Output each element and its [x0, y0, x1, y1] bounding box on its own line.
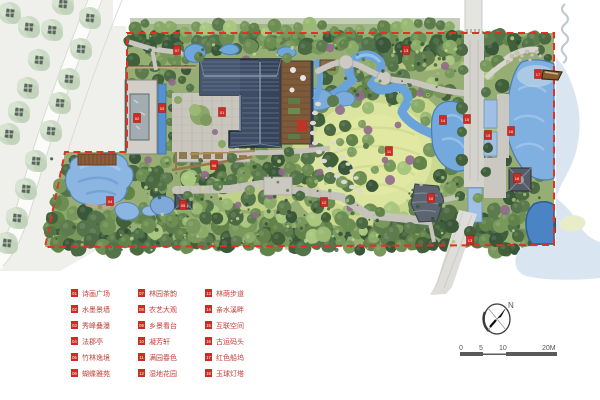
svg-text:01: 01 [72, 291, 77, 296]
svg-text:竹林逸境: 竹林逸境 [82, 353, 110, 362]
svg-text:0: 0 [459, 345, 463, 352]
svg-text:17: 17 [206, 355, 211, 360]
svg-text:06: 06 [212, 163, 217, 168]
svg-text:14: 14 [441, 118, 446, 123]
svg-text:15: 15 [206, 323, 211, 328]
svg-text:20M: 20M [542, 345, 556, 352]
svg-text:10: 10 [139, 339, 144, 344]
svg-text:08: 08 [139, 307, 144, 312]
svg-text:16: 16 [509, 129, 514, 134]
svg-text:04: 04 [108, 199, 113, 204]
svg-text:15: 15 [465, 117, 470, 122]
svg-text:林荫步道: 林荫步道 [216, 289, 244, 298]
svg-text:06: 06 [72, 371, 77, 376]
svg-text:16: 16 [206, 339, 211, 344]
svg-text:18: 18 [206, 371, 211, 376]
svg-text:诗画广场: 诗画广场 [82, 289, 110, 298]
svg-text:法郡亭: 法郡亭 [82, 337, 103, 346]
svg-text:古运码头: 古运码头 [216, 337, 244, 346]
svg-text:秀峰叠瀑: 秀峰叠瀑 [82, 321, 110, 330]
svg-text:水墨景墙: 水墨景墙 [82, 305, 110, 314]
svg-text:04: 04 [72, 339, 77, 344]
svg-text:05: 05 [72, 355, 77, 360]
svg-text:互联空间: 互联空间 [216, 321, 244, 330]
svg-text:02: 02 [72, 307, 77, 312]
svg-text:12: 12 [139, 371, 144, 376]
svg-text:5: 5 [479, 345, 483, 352]
svg-text:02: 02 [135, 116, 140, 121]
svg-text:红色船坞: 红色船坞 [216, 353, 244, 362]
svg-text:凝芳轩: 凝芳轩 [149, 337, 170, 346]
svg-text:蝴蝶雅苑: 蝴蝶雅苑 [82, 369, 110, 378]
svg-text:09: 09 [139, 323, 144, 328]
svg-text:05: 05 [181, 203, 186, 208]
svg-text:N: N [508, 301, 514, 310]
svg-text:17: 17 [536, 72, 541, 77]
svg-text:07: 07 [139, 291, 144, 296]
svg-text:01: 01 [220, 110, 225, 115]
svg-text:13: 13 [404, 48, 409, 53]
svg-text:10: 10 [499, 345, 507, 352]
svg-text:玉球灯塔: 玉球灯塔 [216, 369, 244, 378]
svg-text:12: 12 [322, 200, 327, 205]
svg-text:10: 10 [429, 196, 434, 201]
svg-text:13: 13 [206, 291, 211, 296]
svg-text:03: 03 [160, 106, 165, 111]
svg-text:03: 03 [72, 323, 77, 328]
svg-text:16: 16 [515, 176, 520, 181]
svg-text:满园春色: 满园春色 [149, 353, 177, 362]
svg-text:湿地花园: 湿地花园 [149, 369, 177, 378]
svg-text:15: 15 [486, 133, 491, 138]
svg-text:林园茶韵: 林园茶韵 [149, 289, 177, 298]
svg-text:13: 13 [468, 238, 473, 243]
svg-text:乡景看台: 乡景看台 [149, 321, 177, 330]
svg-text:农艺大观: 农艺大观 [149, 305, 177, 314]
svg-text:亲水溪畔: 亲水溪畔 [216, 305, 244, 314]
svg-text:14: 14 [206, 307, 211, 312]
svg-text:11: 11 [139, 355, 144, 360]
svg-text:07: 07 [175, 48, 180, 53]
